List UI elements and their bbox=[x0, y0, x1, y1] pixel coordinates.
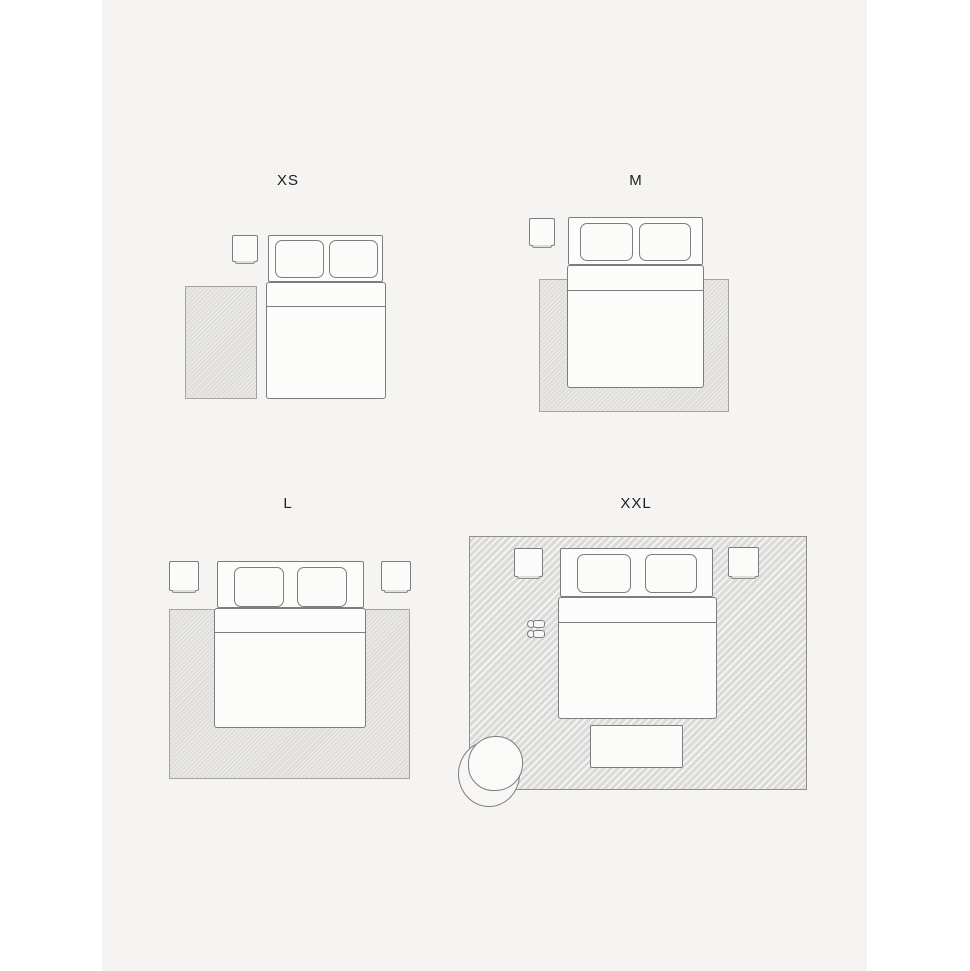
bed-head bbox=[268, 235, 383, 282]
bed-head bbox=[217, 561, 364, 608]
nightstand-right bbox=[728, 547, 759, 577]
nightstand-left bbox=[169, 561, 199, 591]
pillow bbox=[639, 223, 691, 261]
slipper bbox=[527, 620, 545, 628]
canvas-background bbox=[102, 0, 867, 971]
duvet-fold-line bbox=[568, 266, 703, 291]
nightstand-base bbox=[517, 576, 540, 579]
nightstand-base bbox=[384, 590, 408, 593]
pillow bbox=[580, 223, 633, 261]
slipper-sole bbox=[533, 620, 545, 628]
nightstand-base bbox=[235, 261, 255, 264]
duvet-fold-line bbox=[559, 598, 716, 623]
nightstand-base bbox=[172, 590, 196, 593]
bed-duvet bbox=[567, 265, 704, 388]
size-label-l: L bbox=[248, 495, 328, 512]
nightstand-base bbox=[731, 576, 756, 579]
pillow bbox=[329, 240, 378, 278]
bed-duvet bbox=[214, 608, 366, 728]
pillow bbox=[234, 567, 284, 607]
bed-end-bench bbox=[590, 725, 683, 768]
pillow bbox=[645, 554, 697, 593]
bed-duvet bbox=[266, 282, 386, 399]
slipper bbox=[527, 630, 545, 638]
duvet-fold-line bbox=[267, 283, 385, 307]
pillow bbox=[275, 240, 324, 278]
bed-duvet bbox=[558, 597, 717, 719]
slipper-sole bbox=[533, 630, 545, 638]
rug-size-guide: XS M L bbox=[0, 0, 970, 971]
bed-head bbox=[560, 548, 713, 597]
nightstand-left bbox=[514, 548, 543, 577]
size-label-xs: XS bbox=[248, 172, 328, 189]
slippers-icon bbox=[527, 620, 545, 638]
bed-head bbox=[568, 217, 703, 265]
pillow bbox=[577, 554, 631, 593]
armchair-seat bbox=[468, 736, 523, 791]
duvet-fold-line bbox=[215, 609, 365, 633]
size-label-xxl: XXL bbox=[596, 495, 676, 512]
nightstand bbox=[529, 218, 555, 246]
nightstand bbox=[232, 235, 258, 262]
nightstand-base bbox=[532, 245, 552, 248]
rug-xs bbox=[185, 286, 257, 399]
nightstand-right bbox=[381, 561, 411, 591]
pillow bbox=[297, 567, 347, 607]
size-label-m: M bbox=[596, 172, 676, 189]
